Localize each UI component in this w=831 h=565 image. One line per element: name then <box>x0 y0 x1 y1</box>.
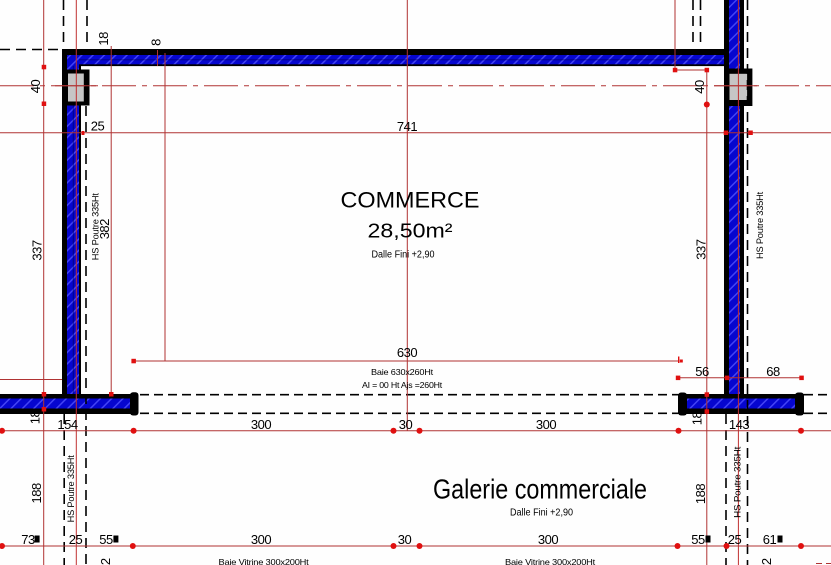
svg-text:40: 40 <box>692 80 707 94</box>
svg-text:25: 25 <box>69 532 83 547</box>
svg-text:337: 337 <box>29 240 44 260</box>
svg-text:AI = 00 Ht Ajs =260Ht: AI = 00 Ht Ajs =260Ht <box>362 380 443 390</box>
svg-text:18: 18 <box>28 411 43 425</box>
svg-text:Baie 630x260Ht: Baie 630x260Ht <box>371 367 434 377</box>
svg-text:Galerie commerciale: Galerie commerciale <box>433 474 647 505</box>
svg-text:56: 56 <box>695 364 709 379</box>
svg-text:337: 337 <box>694 239 709 259</box>
svg-text:300: 300 <box>251 532 271 547</box>
svg-text:40: 40 <box>28 80 43 94</box>
svg-text:300: 300 <box>538 532 558 547</box>
svg-text:300: 300 <box>536 417 556 432</box>
svg-text:30: 30 <box>398 532 412 547</box>
svg-text:2: 2 <box>759 558 774 565</box>
svg-text:55: 55 <box>99 532 113 547</box>
svg-text:HS Poutre 335Ht: HS Poutre 335Ht <box>66 455 77 523</box>
svg-text:300: 300 <box>251 417 271 432</box>
svg-text:68: 68 <box>766 364 780 379</box>
svg-text:188: 188 <box>29 483 44 503</box>
svg-text:COMMERCE: COMMERCE <box>341 188 480 213</box>
svg-text:HS Poutre 335Ht: HS Poutre 335Ht <box>755 191 766 259</box>
svg-text:18: 18 <box>690 412 705 426</box>
svg-text:Dalle Fini +2,90: Dalle Fini +2,90 <box>372 250 435 261</box>
svg-text:188: 188 <box>693 484 708 504</box>
svg-text:25: 25 <box>91 119 105 134</box>
svg-text:143: 143 <box>729 417 749 432</box>
svg-text:Dalle Fini +2,90: Dalle Fini +2,90 <box>510 508 573 519</box>
svg-text:2: 2 <box>98 558 113 565</box>
svg-text:HS Poutre 335Ht: HS Poutre 335Ht <box>91 193 102 261</box>
svg-text:630: 630 <box>397 345 417 360</box>
svg-text:154: 154 <box>57 417 77 432</box>
svg-text:Baie Vitrine 300x200Ht: Baie Vitrine 300x200Ht <box>505 557 596 565</box>
svg-text:73: 73 <box>21 532 35 547</box>
svg-text:30: 30 <box>399 417 413 432</box>
svg-text:18: 18 <box>96 32 111 46</box>
svg-text:741: 741 <box>397 119 417 134</box>
svg-text:HS Poutre 335Ht: HS Poutre 335Ht <box>733 446 744 518</box>
svg-text:28,50m²: 28,50m² <box>368 221 453 243</box>
svg-text:25: 25 <box>728 532 742 547</box>
svg-text:Baie Vitrine 300x200Ht: Baie Vitrine 300x200Ht <box>219 557 310 565</box>
svg-text:55: 55 <box>691 532 705 547</box>
svg-text:61: 61 <box>763 532 777 547</box>
svg-text:8: 8 <box>149 39 164 46</box>
